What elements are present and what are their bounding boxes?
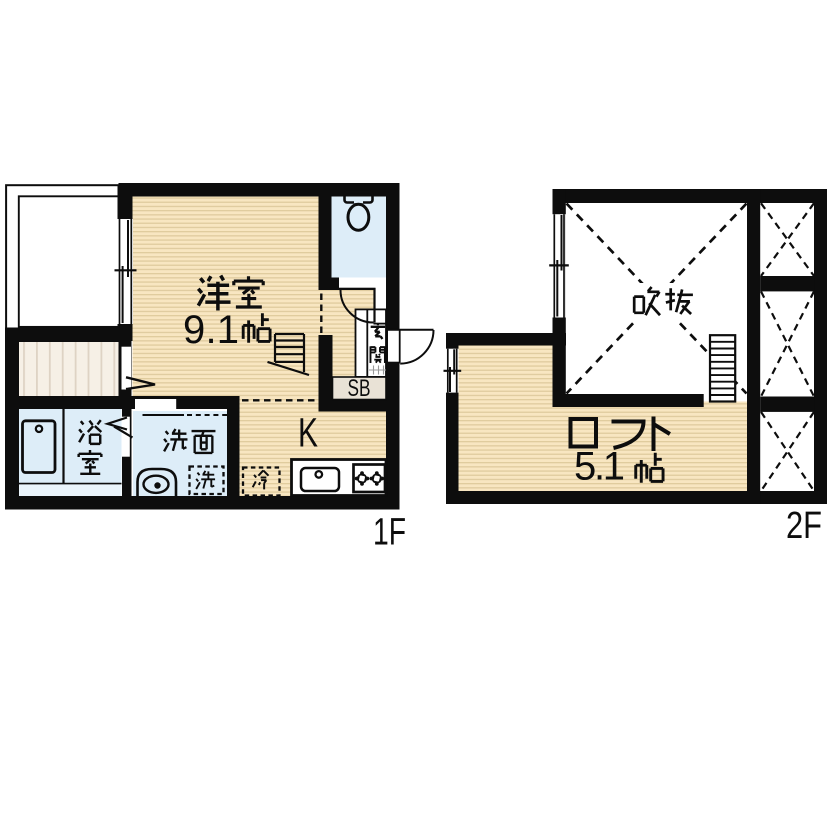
svg-text:SB: SB — [348, 375, 371, 402]
svg-text:2F: 2F — [786, 505, 822, 547]
svg-text:1F: 1F — [373, 512, 406, 554]
svg-text:5.1: 5.1 — [574, 445, 625, 489]
svg-text:K: K — [298, 410, 318, 456]
svg-text:9.1: 9.1 — [183, 308, 239, 352]
